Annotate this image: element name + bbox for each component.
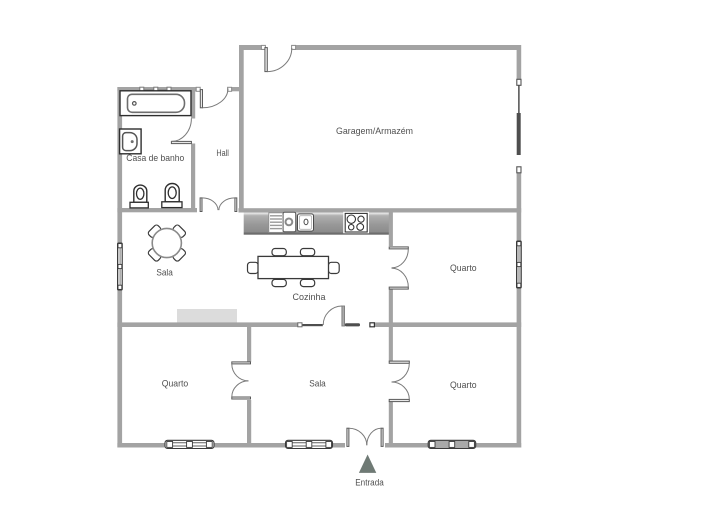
svg-text:Entrada: Entrada <box>355 477 384 488</box>
svg-text:Quarto: Quarto <box>450 380 477 391</box>
svg-text:Hall: Hall <box>216 148 229 159</box>
svg-text:Quarto: Quarto <box>162 378 189 389</box>
svg-text:Quarto: Quarto <box>450 263 477 274</box>
svg-text:Sala: Sala <box>309 378 326 389</box>
svg-text:Cozinha: Cozinha <box>293 292 327 303</box>
svg-text:Casa de banho: Casa de banho <box>126 153 184 164</box>
svg-text:Garagem/Armazém: Garagem/Armazém <box>336 126 413 137</box>
svg-text:Sala: Sala <box>156 268 173 279</box>
